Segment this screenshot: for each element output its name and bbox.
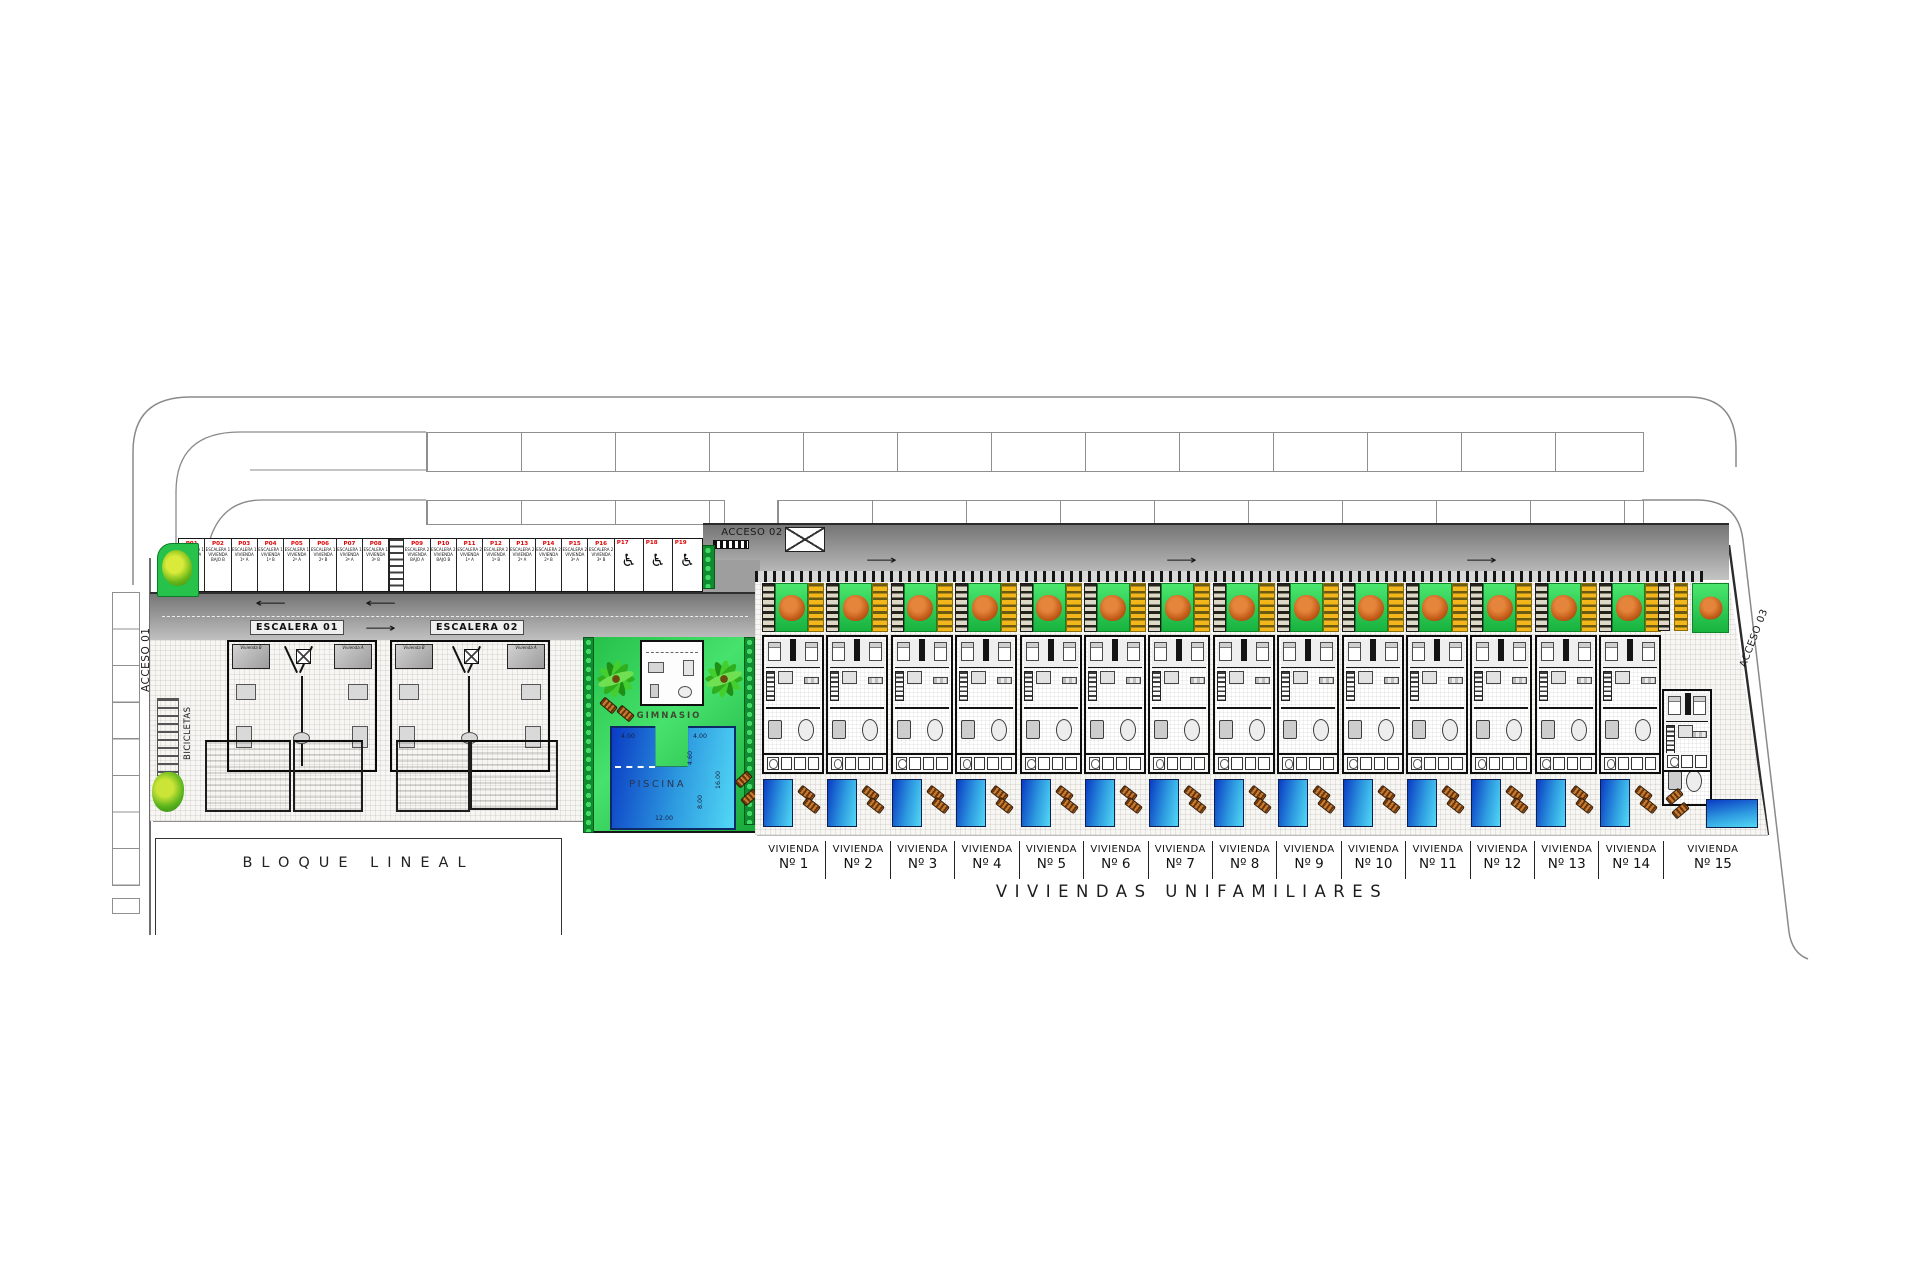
villa-label-number: Nº 10 — [1342, 856, 1405, 872]
pergola — [1452, 583, 1468, 632]
porch-table — [1282, 757, 1294, 770]
bicicletas-label: BICICLETAS — [183, 698, 193, 760]
kitchen-counter — [1512, 677, 1527, 684]
kitchen-counter — [804, 677, 819, 684]
porch-seat — [1387, 757, 1399, 770]
villa-columns — [762, 583, 1661, 835]
dining-table — [1635, 719, 1651, 741]
villa-label-prefix: VIVIENDA — [1020, 844, 1083, 855]
porch-seat — [1167, 757, 1179, 770]
porch-seat — [1567, 757, 1579, 770]
villa-garden — [826, 774, 888, 835]
porch-seat — [936, 757, 948, 770]
sofa — [1090, 720, 1104, 739]
sun-lounger — [1446, 797, 1465, 815]
sofa — [961, 720, 975, 739]
wall — [1474, 707, 1528, 709]
tree — [779, 595, 805, 621]
staircase — [1666, 725, 1675, 755]
bathroom — [1164, 671, 1179, 684]
parking-stall: P14 ESCALERA 2 VIVIENDA 2º B — [536, 539, 562, 591]
villa-front-yard — [1535, 583, 1597, 632]
rear-porch — [1084, 755, 1146, 774]
tree — [1100, 595, 1126, 621]
porch-table — [1540, 757, 1552, 770]
palm-tree-icon — [593, 657, 639, 701]
villa-house-plan — [1213, 635, 1275, 755]
escalera-02-label: ESCALERA 02 — [430, 620, 524, 635]
staircase — [959, 671, 968, 701]
private-pool — [1536, 779, 1566, 827]
wall — [1024, 707, 1078, 709]
staircase — [1281, 671, 1290, 701]
awning-vivienda-b: Vivienda B — [395, 644, 433, 669]
porch-seat — [909, 757, 921, 770]
front-lawn — [1419, 583, 1452, 632]
bathroom — [1486, 671, 1501, 684]
pergola — [872, 583, 888, 632]
porch-table — [960, 757, 972, 770]
villa-plot — [1535, 583, 1597, 835]
porch-table — [1604, 757, 1616, 770]
parking-stall: P06 ESCALERA 1 VIVIENDA 2º B — [310, 539, 336, 591]
terrace — [396, 740, 470, 812]
villa-plot — [1213, 583, 1275, 835]
bed — [805, 642, 818, 661]
wall — [1217, 707, 1271, 709]
awning-vivienda-a: Vivienda A — [507, 644, 545, 669]
parking-stall: P13 ESCALERA 2 VIVIENDA 2º A — [510, 539, 536, 591]
villa-label: VIVIENDA Nº 12 — [1471, 841, 1535, 879]
private-pool — [1471, 779, 1501, 827]
porch-seat — [1038, 757, 1050, 770]
room-furniture — [348, 684, 368, 700]
front-lawn — [1483, 583, 1516, 632]
porch-table — [896, 757, 908, 770]
stall-line: BAJO A — [410, 557, 424, 562]
staircase — [1539, 671, 1548, 701]
driveway-strip — [1084, 583, 1097, 632]
porch-seat — [1296, 757, 1308, 770]
rear-porch — [762, 755, 824, 774]
bathroom — [1036, 671, 1051, 684]
rear-porch — [1020, 755, 1082, 774]
palm-tree-icon — [701, 657, 747, 701]
villa-plot — [1020, 583, 1082, 835]
villa-label: VIVIENDA Nº 5 — [1020, 841, 1084, 879]
villa-label-prefix: VIVIENDA — [1149, 844, 1212, 855]
tree — [1616, 595, 1642, 621]
villa-label: VIVIENDA Nº 1 — [762, 841, 826, 879]
porch-seat — [872, 757, 884, 770]
pergola — [1066, 583, 1082, 632]
sofa — [1605, 720, 1619, 739]
stall-line: 3º B — [597, 557, 605, 562]
kitchen-counter — [1577, 677, 1592, 684]
sun-lounger — [1510, 797, 1529, 815]
sofa — [1348, 720, 1362, 739]
sofa — [1154, 720, 1168, 739]
driveway-strip — [1213, 583, 1226, 632]
gimnasio-label: GIMNASIO — [583, 711, 755, 721]
gym-equipment — [678, 686, 692, 698]
wall — [1434, 639, 1440, 661]
dining-table — [1686, 770, 1702, 792]
front-lawn — [904, 583, 937, 632]
rear-porch — [1148, 755, 1210, 774]
driveway-strip — [1342, 583, 1355, 632]
private-pool — [1214, 779, 1244, 827]
porch-table — [1218, 757, 1230, 770]
wall — [1152, 707, 1206, 709]
pool-dim: 16.00 — [715, 771, 722, 789]
porch-seat — [1001, 757, 1013, 770]
bathroom — [842, 671, 857, 684]
villa-plot — [1470, 583, 1532, 835]
villa-house-plan — [1662, 689, 1712, 806]
wheelchair-icon: ♿ — [644, 553, 672, 570]
parking-stall: P11 ESCALERA 2 VIVIENDA 1º A — [457, 539, 483, 591]
tree — [907, 595, 933, 621]
private-pool — [1149, 779, 1179, 827]
wall — [1241, 639, 1247, 661]
dining-table — [1378, 719, 1394, 741]
wall — [790, 639, 796, 661]
staircase — [1410, 671, 1419, 701]
villa-front-yard — [826, 583, 888, 632]
porch-seat — [845, 757, 857, 770]
porch-seat — [858, 757, 870, 770]
villa-label-prefix: VIVIENDA — [1277, 844, 1340, 855]
street-parking-row-north-1 — [426, 432, 1644, 472]
villa-garden — [1020, 774, 1082, 835]
stall-line: 2º A — [293, 557, 301, 562]
parking-stall: P09 ESCALERA 2 VIVIENDA BAJO A — [404, 539, 430, 591]
stall-line: 3º A — [345, 557, 353, 562]
porch-seat — [781, 757, 793, 770]
staircase — [1346, 671, 1355, 701]
porch-seat — [1116, 757, 1128, 770]
handicap-parking-stall: P19 ♿ — [673, 539, 702, 591]
private-pool — [956, 779, 986, 827]
gym-equipment — [648, 662, 664, 673]
crosswalk — [713, 540, 749, 549]
rear-porch — [1662, 753, 1712, 772]
arrow-right-icon: ⟶ — [866, 553, 897, 567]
front-lawn — [968, 583, 1001, 632]
bed — [1348, 642, 1361, 661]
acceso-01-label: ACCESO 01 — [140, 616, 152, 692]
sun-lounger — [1382, 797, 1401, 815]
private-pool — [1343, 779, 1373, 827]
villa-label-number: Nº 1 — [762, 856, 825, 872]
villa-house-plan — [1342, 635, 1404, 755]
parking-stall: P05 ESCALERA 1 VIVIENDA 2º A — [284, 539, 310, 591]
sun-lounger — [1253, 797, 1272, 815]
villa-garden — [891, 774, 953, 835]
villa-label-prefix: VIVIENDA — [955, 844, 1018, 855]
stall-line: 1º B — [492, 557, 500, 562]
villa-label-number: Nº 7 — [1149, 856, 1212, 872]
porch-table — [1347, 757, 1359, 770]
villa-label-number: Nº 3 — [891, 856, 954, 872]
villa-plot — [1599, 583, 1661, 835]
wall — [1603, 707, 1657, 709]
porch-seat — [1194, 757, 1206, 770]
gym-equipment — [683, 660, 694, 676]
villa-label-prefix: VIVIENDA — [1084, 844, 1147, 855]
villa-label-prefix: VIVIENDA — [826, 844, 889, 855]
stall-line: BAJO B — [436, 557, 450, 562]
arrow-right-icon: ⟶ — [1466, 553, 1497, 567]
stall-number: P19 — [675, 540, 687, 546]
street-parking-west-stub — [112, 898, 140, 914]
stall-number: P18 — [646, 540, 658, 546]
bathroom — [971, 671, 986, 684]
villa-label: VIVIENDA Nº 14 — [1599, 841, 1663, 879]
bed — [1513, 642, 1526, 661]
wall — [1370, 639, 1376, 661]
villa-house-plan — [1406, 635, 1468, 755]
driveway-strip — [1599, 583, 1612, 632]
front-lawn — [1161, 583, 1194, 632]
porch-seat — [1502, 757, 1514, 770]
villa-garden — [1277, 774, 1339, 835]
villa-garden — [1213, 774, 1275, 835]
pergola — [1516, 583, 1532, 632]
parking-group-escalera-2: P09 ESCALERA 2 VIVIENDA BAJO A P10 ESCAL… — [404, 539, 614, 591]
sofa — [1668, 771, 1682, 790]
stall-line: 2º B — [544, 557, 552, 562]
villa-label-number: Nº 11 — [1406, 856, 1469, 872]
porch-seat — [1553, 757, 1565, 770]
villa-garden — [762, 774, 824, 835]
driveway-strip — [1148, 583, 1161, 632]
parking-stall: P12 ESCALERA 2 VIVIENDA 1º B — [483, 539, 509, 591]
villa-plot — [1342, 583, 1404, 835]
staircase — [1152, 671, 1161, 701]
bathroom — [1100, 671, 1115, 684]
driveway-strip — [955, 583, 968, 632]
villa-front-yard — [1084, 583, 1146, 632]
wall — [854, 639, 860, 661]
villa-house-plan — [1599, 635, 1661, 755]
wall — [895, 707, 949, 709]
wall — [983, 639, 989, 661]
porch-seat — [1245, 757, 1257, 770]
wall — [1048, 639, 1054, 661]
wall — [919, 639, 925, 661]
villa-label: VIVIENDA Nº 6 — [1084, 841, 1148, 879]
stall-line: 2º A — [518, 557, 526, 562]
villa-label-prefix: VIVIENDA — [1342, 844, 1405, 855]
porch-seat — [974, 757, 986, 770]
elevator-core — [464, 649, 479, 664]
wall — [1112, 639, 1118, 661]
villa-front-yard — [1213, 583, 1275, 632]
pool-dim: 4.60 — [687, 751, 694, 765]
kitchen-counter — [1448, 677, 1463, 684]
pergola — [937, 583, 953, 632]
villa-house-plan — [762, 635, 824, 755]
bed — [1412, 642, 1425, 661]
villa-front-yard — [1342, 583, 1404, 632]
sun-lounger — [931, 797, 950, 815]
villa-plot — [891, 583, 953, 835]
villa-label: VIVIENDA Nº 2 — [826, 841, 890, 879]
front-lawn — [1097, 583, 1130, 632]
stall-line: BAJO B — [211, 557, 225, 562]
bathroom — [778, 671, 793, 684]
villa-plot — [826, 583, 888, 835]
wheelchair-icon: ♿ — [673, 553, 702, 570]
porch-seat — [808, 757, 820, 770]
sun-lounger — [1639, 797, 1658, 815]
villa-house-plan — [1470, 635, 1532, 755]
villa-label-prefix: VIVIENDA — [891, 844, 954, 855]
porch-table — [1025, 757, 1037, 770]
dining-table — [1571, 719, 1587, 741]
dining-table — [798, 719, 814, 741]
porch-seat — [1580, 757, 1592, 770]
bed — [1541, 642, 1554, 661]
porch-seat — [1323, 757, 1335, 770]
room-furniture — [236, 684, 256, 700]
bed — [897, 642, 910, 661]
tree — [1487, 595, 1513, 621]
arrow-right-icon: ⟶ — [1166, 553, 1197, 567]
wall — [959, 707, 1013, 709]
bed — [1385, 642, 1398, 661]
villa-label: VIVIENDA Nº 9 — [1277, 841, 1341, 879]
arrow-left-icon: ⟵ — [365, 596, 396, 610]
villa-garden — [1148, 774, 1210, 835]
sofa — [1412, 720, 1426, 739]
staircase — [895, 671, 904, 701]
villa-label-prefix: VIVIENDA — [762, 844, 825, 855]
front-lawn — [1033, 583, 1066, 632]
villa-front-yard — [762, 583, 824, 632]
kitchen-counter — [997, 677, 1012, 684]
elevator-core — [296, 649, 311, 664]
front-lawn — [839, 583, 872, 632]
stall-line: 2º B — [319, 557, 327, 562]
villa-plot — [1406, 583, 1468, 835]
porch-seat — [1631, 757, 1643, 770]
private-pool — [1706, 799, 1758, 828]
pergola — [1194, 583, 1210, 632]
bathroom — [1358, 671, 1373, 684]
wall — [1498, 639, 1504, 661]
bike-rack — [157, 698, 179, 776]
room-furniture — [399, 684, 419, 700]
pool-dim: 8.00 — [697, 795, 704, 809]
wall — [1563, 639, 1569, 661]
villa-label-prefix: VIVIENDA — [1406, 844, 1469, 855]
villa-front-yard — [1277, 583, 1339, 632]
driveway-strip — [1406, 583, 1419, 632]
bed — [961, 642, 974, 661]
villa-label: VIVIENDA Nº 10 — [1342, 841, 1406, 879]
bed — [869, 642, 882, 661]
stall-line: 3º A — [571, 557, 579, 562]
villa-label-prefix: VIVIENDA — [1599, 844, 1662, 855]
tree — [843, 595, 869, 621]
bed — [1693, 696, 1706, 715]
porch-seat — [1451, 757, 1463, 770]
staircase — [1603, 671, 1612, 701]
corner-tree — [157, 543, 199, 597]
pool-dim: 4.00 — [621, 733, 635, 740]
staircase — [830, 671, 839, 701]
villa-label: VIVIENDA Nº 4 — [955, 841, 1019, 879]
private-pool — [1021, 779, 1051, 827]
parking-stall: P02 ESCALERA 1 VIVIENDA BAJO B — [205, 539, 231, 591]
sofa — [1026, 720, 1040, 739]
staircase — [1088, 671, 1097, 701]
sofa — [832, 720, 846, 739]
sun-lounger — [866, 797, 885, 815]
porch-seat — [1645, 757, 1657, 770]
kitchen-counter — [933, 677, 948, 684]
villa-garden — [955, 774, 1017, 835]
porch-seat — [1695, 755, 1707, 768]
porch-seat — [1489, 757, 1501, 770]
parking-group-handicap: P17 ♿ P18 ♿ P19 ♿ — [615, 539, 702, 591]
street-parking-row-north-2-right — [777, 500, 1644, 525]
villas-front-fence — [755, 571, 1703, 583]
villa-label-number: Nº 8 — [1213, 856, 1276, 872]
front-lawn — [1548, 583, 1581, 632]
villa-labels-row: VIVIENDA Nº 1 VIVIENDA Nº 2 VIVIENDA Nº … — [762, 841, 1762, 879]
stall-number: P17 — [617, 540, 629, 546]
escalera-01-label: ESCALERA 01 — [250, 620, 344, 635]
rear-porch — [1277, 755, 1339, 774]
bed — [1283, 642, 1296, 661]
villa-label-prefix: VIVIENDA — [1535, 844, 1598, 855]
villa-front-yard — [955, 583, 1017, 632]
bed — [1320, 642, 1333, 661]
dining-table — [862, 719, 878, 741]
kitchen-counter — [1692, 731, 1707, 738]
porch-table — [1475, 757, 1487, 770]
gym-building — [640, 640, 704, 706]
tree — [972, 595, 998, 621]
villa-plot — [955, 583, 1017, 835]
site-plan: ⟶ ⟶ ⟶ ⟵ ⟵ ⟶ ⟶ ESCALERA 01 ESCALERA 02 P0… — [0, 0, 1920, 1280]
sun-lounger — [1124, 797, 1143, 815]
sun-lounger — [1060, 797, 1079, 815]
pool-dim: 12.00 — [655, 815, 673, 822]
tree — [1551, 595, 1577, 621]
villa-house-plan — [1148, 635, 1210, 755]
street-parking-west — [112, 592, 140, 886]
parking-stall: P16 ESCALERA 2 VIVIENDA 3º B — [588, 539, 614, 591]
villa-label-prefix: VIVIENDA — [1664, 844, 1762, 855]
wall — [830, 707, 884, 709]
porch-table — [767, 757, 779, 770]
dining-table — [991, 719, 1007, 741]
porch-seat — [923, 757, 935, 770]
dining-table — [1313, 719, 1329, 741]
villa-front-yard — [891, 583, 953, 632]
dining-table — [1184, 719, 1200, 741]
villa-house-plan — [1084, 635, 1146, 755]
villa-plot — [1148, 583, 1210, 835]
staircase — [1474, 671, 1483, 701]
kitchen-counter — [1319, 677, 1334, 684]
pool-dim: 4.00 — [693, 733, 707, 740]
